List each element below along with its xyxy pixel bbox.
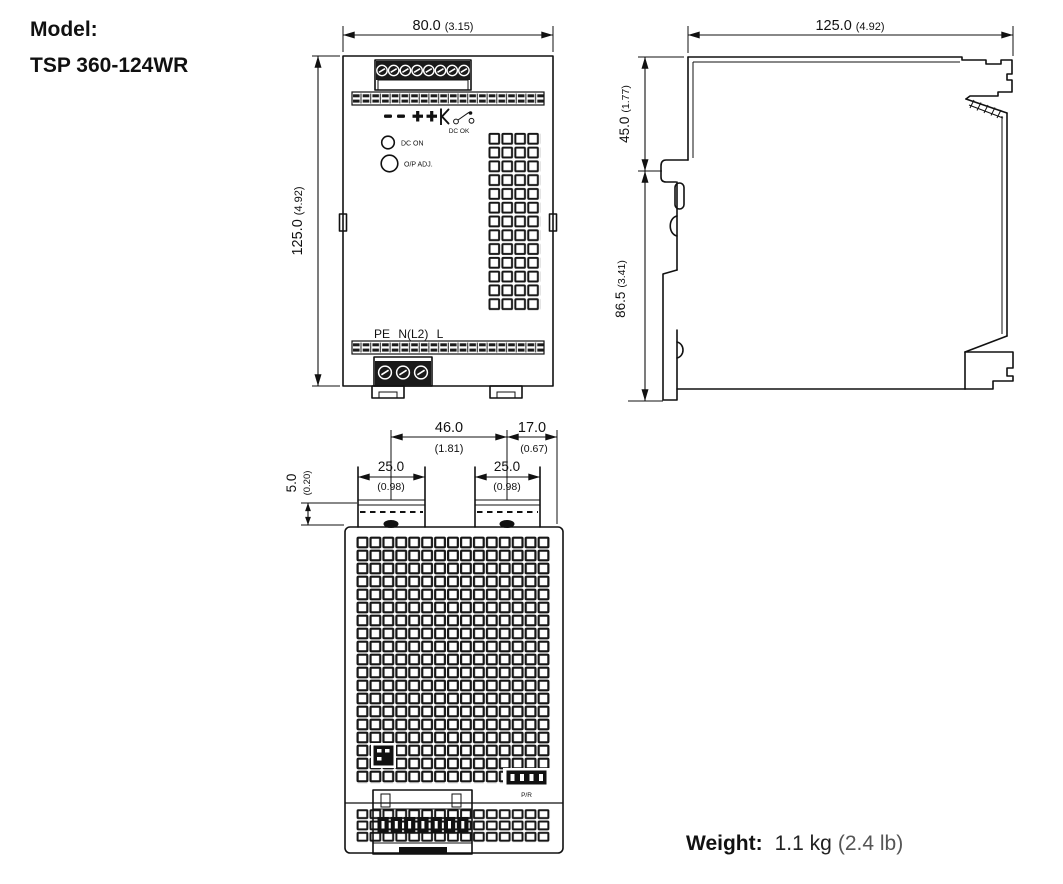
dim-side-width-inch: (4.92): [856, 21, 885, 33]
dim-front-width-mm: 80.0: [413, 18, 441, 34]
dim-rail-depth: 5.0 (0.20): [284, 471, 357, 525]
side-hatched-slope: [966, 99, 1007, 118]
side-din-clip-profile: [661, 57, 693, 400]
dip-switch: [371, 743, 396, 768]
dim-feet-span: 46.0 (1.81): [391, 420, 507, 500]
dim-front-height-label: 125.0(4.92): [290, 186, 306, 255]
dim-side-lower-mm: 86.5: [613, 292, 628, 318]
output-polarity-symbols: DC OK: [384, 109, 474, 136]
dim-rail-depth-inch: (0.20): [302, 471, 313, 496]
minus-symbol: [397, 115, 405, 118]
din-foot-right: [490, 386, 522, 398]
dc-on-label: DC ON: [401, 141, 424, 148]
connector-terminals: [378, 817, 469, 834]
dc-on-led: DC ON: [382, 136, 424, 149]
plus-symbol: [427, 111, 438, 122]
side-view: 125.0(4.92) 45.0(1.77) 86.5(3.41): [613, 18, 1013, 401]
dim-side-width: 125.0(4.92): [688, 18, 1013, 56]
din-foot-left: [372, 386, 404, 398]
front-vent-grid: [489, 132, 541, 311]
front-input-terminal-block: [374, 357, 432, 386]
dim-foot-left-inch: (0.98): [377, 481, 404, 493]
side-input-terminal-profile: [965, 352, 1013, 389]
dim-rail-depth-mm: 5.0: [284, 474, 299, 493]
aux-connector: P/R: [503, 768, 551, 799]
relay-contact-symbol: [441, 109, 474, 126]
weight-imperial: (2.4 lb): [838, 832, 903, 855]
aux-connector-label: P/R: [521, 792, 532, 799]
input-terminals-label: PE N(L2) L: [374, 327, 444, 341]
side-bottom-slope: [965, 336, 1007, 352]
front-vent-strip-bottom: [352, 341, 544, 354]
output-adjust-pot: O/P ADJ.: [381, 155, 433, 172]
dim-side-width-label: 125.0(4.92): [815, 18, 884, 34]
dim-feet-span-inch: (1.81): [435, 443, 464, 455]
dim-side-lower-label: 86.5(3.41): [613, 260, 628, 318]
minus-symbol: [384, 115, 392, 118]
output-adjust-knob-icon: [381, 155, 398, 172]
dim-edge-offset-inch: (0.67): [520, 443, 547, 455]
dim-side-lower: 86.5(3.41): [613, 171, 663, 401]
dim-edge-offset-mm: 17.0: [518, 420, 546, 436]
dim-side-width-mm: 125.0: [815, 18, 851, 34]
plus-symbol: [413, 111, 424, 122]
technical-drawing: DC OK DC ON O/P ADJ. PE N(L2) L: [0, 0, 1063, 884]
bottom-view: P/R: [284, 420, 563, 854]
dim-side-upper-label: 45.0(1.77): [617, 85, 632, 143]
dim-feet-span-mm: 46.0: [435, 420, 463, 436]
dim-front-width: 80.0(3.15): [343, 18, 553, 52]
dim-side-lower-inch: (3.41): [616, 260, 628, 287]
dim-foot-right-mm: 25.0: [494, 459, 520, 474]
dim-front-width-inch: (3.15): [445, 21, 474, 33]
weight-metric: 1.1 kg: [775, 832, 832, 855]
dim-side-upper-mm: 45.0: [617, 117, 632, 143]
dim-front-width-label: 80.0(3.15): [413, 18, 474, 34]
front-output-terminal-block: [375, 60, 471, 90]
dim-side-upper: 45.0(1.77): [617, 57, 684, 171]
dc-on-led-icon: [382, 136, 395, 149]
dimension-drawing-page: Model: TSP 360-124WR: [0, 0, 1063, 884]
dim-front-height: 125.0(4.92): [290, 56, 340, 386]
dc-ok-label: DC OK: [449, 128, 470, 135]
dim-side-upper-inch: (1.77): [620, 85, 632, 112]
front-view: DC OK DC ON O/P ADJ. PE N(L2) L: [290, 18, 557, 398]
weight-label: Weight:: [686, 832, 763, 855]
dim-front-height-inch: (4.92): [293, 186, 305, 215]
output-adjust-label: O/P ADJ.: [404, 162, 433, 169]
side-top-profile: [688, 57, 1012, 99]
front-vent-strip-top: [352, 92, 544, 105]
dim-front-height-mm: 125.0: [290, 219, 306, 255]
dim-foot-right-inch: (0.98): [493, 481, 520, 493]
weight-block: Weight:1.1 kg(2.4 lb): [686, 832, 903, 856]
dim-foot-left-mm: 25.0: [378, 459, 404, 474]
